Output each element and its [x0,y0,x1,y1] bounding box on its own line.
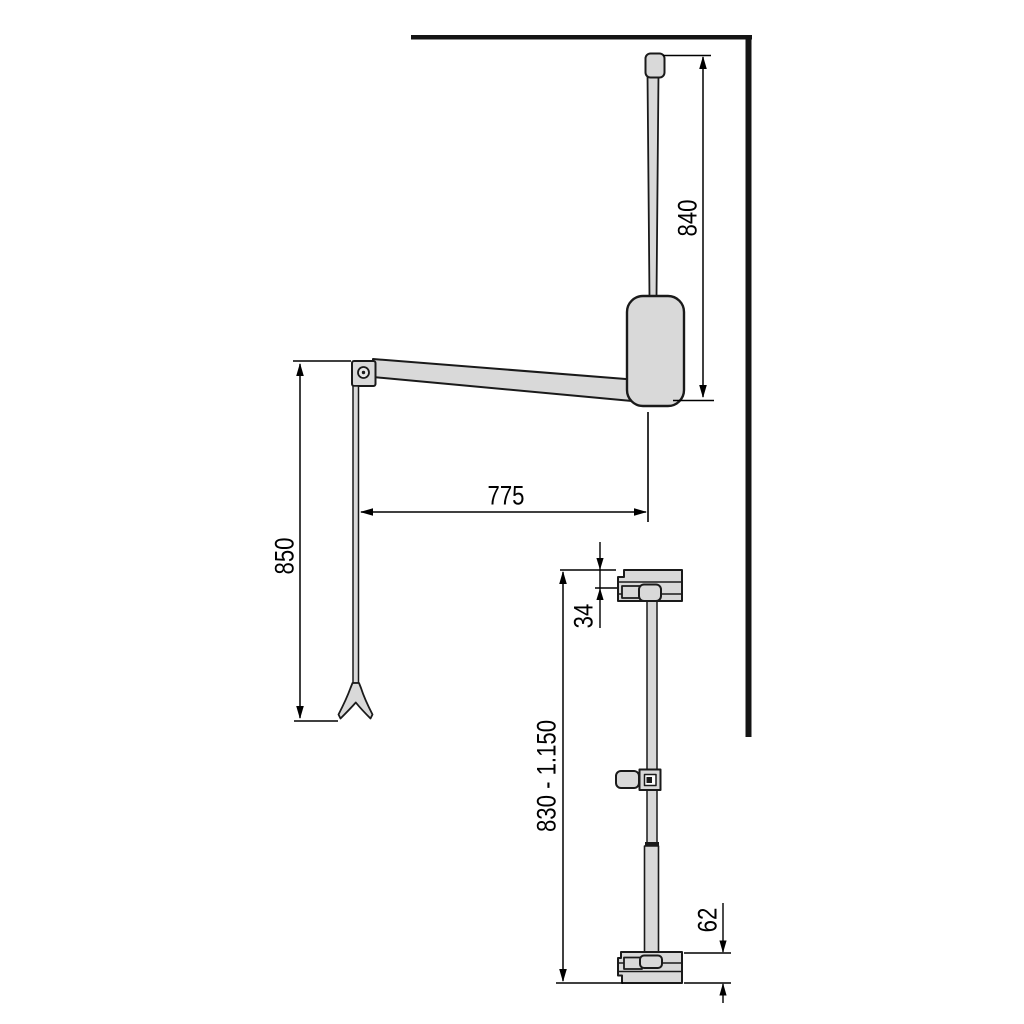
lower-tube [645,846,659,952]
tube-clamp-latch [647,777,653,783]
dim-850-label: 850 [272,538,299,575]
technical-drawing-canvas: 840 850 775 34 830 - 1.150 62 [0,0,1024,1024]
dim-850 [293,361,351,721]
pivot-screw-center [362,371,365,374]
top-bracket-hook [639,585,661,602]
dim-830-1150-label: 830 - 1.150 [534,720,561,832]
handle-rod [648,74,659,298]
handle-cap [646,54,665,78]
cabinet-outline-top [411,35,752,40]
dim-840-label: 840 [675,200,702,237]
cabinet-outline-right [746,35,752,737]
upper-tube [647,601,657,844]
drawing-svg [0,0,1024,1024]
lift-side-view [339,54,685,719]
dim-775-label: 775 [488,483,525,510]
dim-62-label: 62 [695,908,722,933]
dim-34-label: 34 [571,604,598,629]
fork-foot [339,683,373,719]
gas-spring-body [627,296,684,406]
bottom-bracket-hook [640,956,662,969]
lift-front-view [616,570,682,983]
dim-830-1150 [556,571,623,983]
folding-arm [373,359,632,401]
support-rod [353,386,359,683]
tube-clamp-knob [616,771,639,788]
